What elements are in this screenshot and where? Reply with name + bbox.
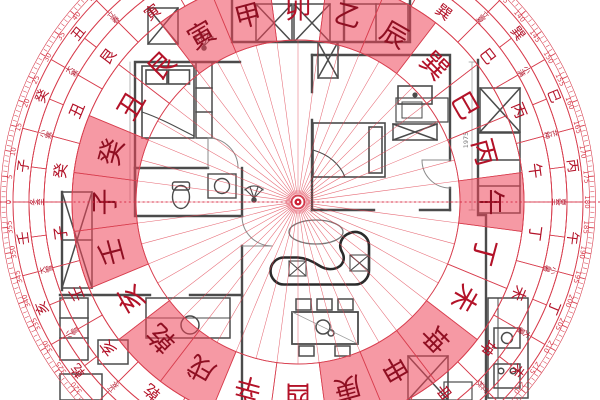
mountain-label: 丑 — [112, 87, 152, 126]
mountain-label: 坤 — [476, 336, 500, 359]
mountain-label: 申 — [432, 380, 455, 400]
mountain-label: 未 — [507, 360, 528, 381]
mountain-cell-午: 午 — [558, 202, 583, 276]
mountain-label: 寅 — [141, 1, 164, 25]
mountain-label: 巽 — [507, 23, 528, 43]
degree-label: 20 — [21, 98, 32, 109]
mountain-label: 巽 — [432, 1, 455, 25]
degree-label: 200 — [564, 293, 576, 308]
mountain-label: 丑 — [68, 23, 89, 43]
mountain-label: 丙 — [465, 135, 502, 169]
mountain-label: 子 — [15, 158, 33, 173]
term-cell-大寒: 大寒 — [49, 38, 96, 105]
mountain-cell-癸: 癸 — [23, 60, 65, 133]
mountain-cell-午: 午 — [459, 173, 524, 232]
mountain-cell-酉: 酉 — [269, 363, 328, 400]
mountain-label: 辛 — [231, 369, 265, 400]
mountain-label: 癸 — [33, 86, 53, 105]
mountain-label: 丁 — [465, 235, 502, 269]
bed-symbol-2 — [313, 86, 448, 177]
mountain-cell-壬: 壬 — [13, 202, 38, 276]
mountain-cell-丁: 丁 — [531, 272, 573, 345]
mountain-label: 丁 — [543, 299, 563, 318]
mountain-label: 丙 — [563, 158, 581, 173]
scene-svg: 1975 — [0, 0, 600, 400]
degree-label: 220 — [512, 380, 527, 395]
luopan-floorplan-canvas: 1975 — [0, 0, 600, 400]
mountain-label: 巳 — [476, 45, 500, 68]
degree-label: 40 — [71, 10, 83, 22]
mountain-label: 子 — [51, 224, 71, 242]
term-cell-立冬: 立冬 — [85, 357, 144, 400]
mountain-label: 午 — [525, 162, 545, 180]
mountain-label: 艮 — [142, 46, 183, 87]
mountain-cell-卯: 卯 — [269, 0, 328, 41]
term-cell-小满: 小满 — [500, 38, 547, 105]
mountain-label: 酉 — [285, 379, 312, 400]
degree-label: 30 — [42, 52, 53, 64]
degree-label: 25 — [31, 74, 42, 85]
dining-table-symbol — [292, 299, 358, 356]
term-cell-立秋: 立秋 — [453, 357, 512, 400]
degree-label: 320 — [69, 380, 84, 395]
mountain-label: 丁 — [525, 224, 545, 242]
degree-label: 195 — [572, 269, 583, 284]
degree-label: 35 — [55, 30, 67, 42]
mountain-cell-子: 子 — [13, 128, 38, 202]
mountain-label: 午 — [563, 230, 581, 245]
mountain-label: 巽 — [413, 46, 454, 87]
mountain-label: 丑 — [66, 100, 89, 121]
mountain-label: 卯 — [285, 0, 312, 26]
mountain-cell-丙: 丙 — [558, 128, 583, 202]
mountain-label: 巳 — [543, 87, 563, 106]
mountain-label: 壬 — [15, 230, 33, 245]
mountain-label: 丙 — [508, 100, 531, 121]
mountain-label: 未 — [444, 279, 484, 318]
degree-label: 340 — [20, 293, 32, 308]
degree-label: 160 — [564, 96, 576, 111]
term-cell-小雪: 小雪 — [49, 299, 96, 366]
mountain-label: 未 — [508, 283, 531, 304]
center-dot — [288, 192, 308, 212]
degree-label: 10 — [9, 147, 18, 157]
basin-symbol — [208, 174, 236, 198]
mountain-label: 乾 — [141, 380, 164, 400]
degree-label: 165 — [572, 120, 583, 135]
degree-label: 140 — [512, 9, 527, 24]
mountain-label: 艮 — [97, 44, 121, 68]
mountain-cell-子: 子 — [72, 173, 137, 232]
mountain-label: 亥 — [33, 299, 53, 318]
degree-label: 345 — [13, 269, 24, 284]
mountain-cell-巳: 巳 — [531, 60, 573, 133]
mountain-label: 壬 — [66, 283, 89, 304]
mountain-cell-亥: 亥 — [23, 272, 65, 345]
mountain-label: 乾 — [68, 360, 89, 381]
mountain-label: 癸 — [51, 161, 71, 179]
luopan-compass: 子癸丑艮寅甲卯乙辰巽巳丙午丁未坤申庚酉辛戌乾亥壬子癸丑艮寅甲卯乙辰巽巳丙午丁未坤… — [0, 0, 600, 400]
mountain-cell-未: 未 — [494, 260, 544, 329]
